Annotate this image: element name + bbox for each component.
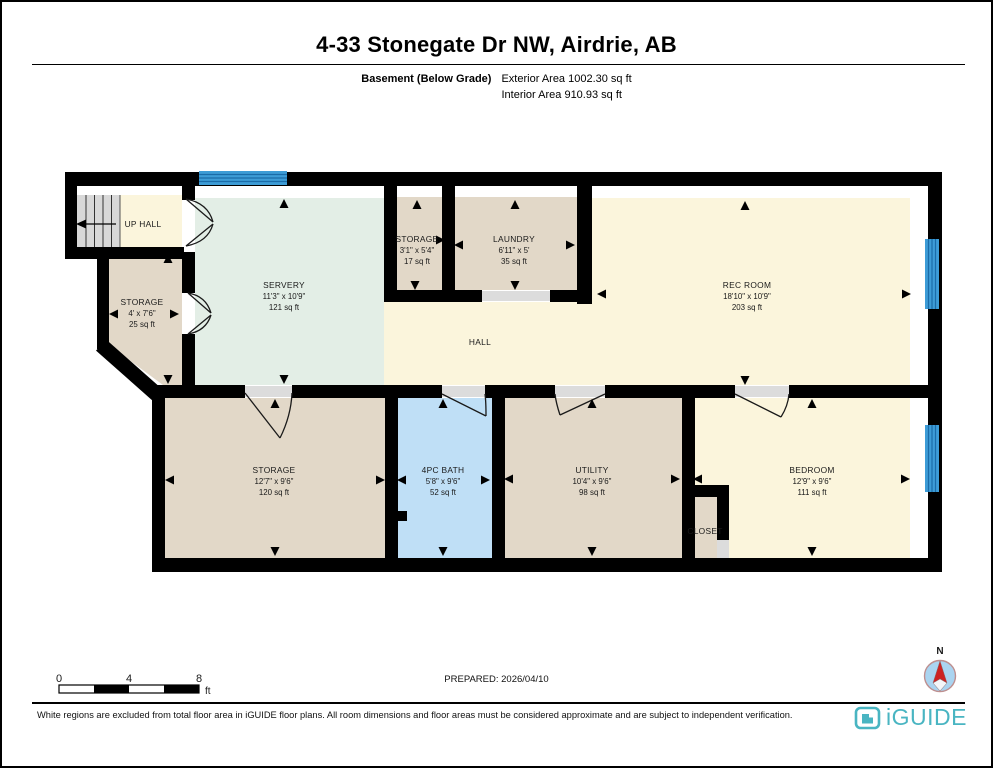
room-area-servery: 121 sq ft xyxy=(269,303,300,312)
room-area-laundry: 35 sq ft xyxy=(501,257,528,266)
room-label-laundry: LAUNDRY xyxy=(493,234,535,244)
iguide-logo-icon xyxy=(854,705,881,730)
room-label-storage-mid: STORAGE xyxy=(396,234,439,244)
window-top xyxy=(199,171,287,185)
window-bedroom xyxy=(925,425,939,492)
room-label-closet: CLOSET xyxy=(687,526,722,536)
room-dims-utility: 10'4" x 9'6" xyxy=(573,477,612,486)
prepared-date: PREPARED: 2026/04/10 xyxy=(2,674,991,685)
room-label-storage-nw: STORAGE xyxy=(121,297,164,307)
room-dims-storage-sw: 12'7" x 9'6" xyxy=(255,477,294,486)
floor-plan-page: 4-33 Stonegate Dr NW, Airdrie, AB Baseme… xyxy=(0,0,993,768)
room-label-rec-room: REC ROOM xyxy=(723,280,771,290)
floor-plan-canvas: UP HALL STORAGE 4' x 7'6" 25 sq ft SERVE… xyxy=(2,2,993,768)
room-label-hall: HALL xyxy=(469,337,491,347)
room-label-storage-sw: STORAGE xyxy=(253,465,296,475)
room-label-utility: UTILITY xyxy=(575,465,608,475)
room-dims-bedroom: 12'9" x 9'6" xyxy=(793,477,832,486)
room-area-bedroom: 111 sq ft xyxy=(797,488,827,497)
room-area-storage-nw: 25 sq ft xyxy=(129,320,156,329)
room-area-utility: 98 sq ft xyxy=(579,488,606,497)
footer-divider xyxy=(32,702,965,704)
room-label-bedroom: BEDROOM xyxy=(789,465,834,475)
room-area-storage-sw: 120 sq ft xyxy=(259,488,290,497)
room-area-rec-room: 203 sq ft xyxy=(732,303,763,312)
room-dims-rec-room: 18'10" x 10'9" xyxy=(723,292,771,301)
room-area-bath: 52 sq ft xyxy=(430,488,457,497)
disclaimer-text: White regions are excluded from total fl… xyxy=(37,710,793,720)
room-dims-laundry: 6'11" x 5' xyxy=(498,246,530,255)
room-label-servery: SERVERY xyxy=(263,280,305,290)
iguide-logo-text: iGUIDE xyxy=(886,704,967,731)
room-dims-storage-nw: 4' x 7'6" xyxy=(128,309,156,318)
room-dims-storage-mid: 3'1" x 5'4" xyxy=(400,246,435,255)
room-label-bath: 4PC BATH xyxy=(422,465,465,475)
scale-unit: ft xyxy=(205,686,211,697)
iguide-logo: iGUIDE xyxy=(854,704,967,731)
room-dims-bath: 5'8" x 9'6" xyxy=(426,477,461,486)
room-dims-servery: 11'3" x 10'9" xyxy=(263,292,306,301)
room-area-storage-mid: 17 sq ft xyxy=(404,257,431,266)
compass-north-label: N xyxy=(936,646,943,657)
window-rec-room xyxy=(925,239,939,309)
room-label-up-hall: UP HALL xyxy=(125,219,162,229)
